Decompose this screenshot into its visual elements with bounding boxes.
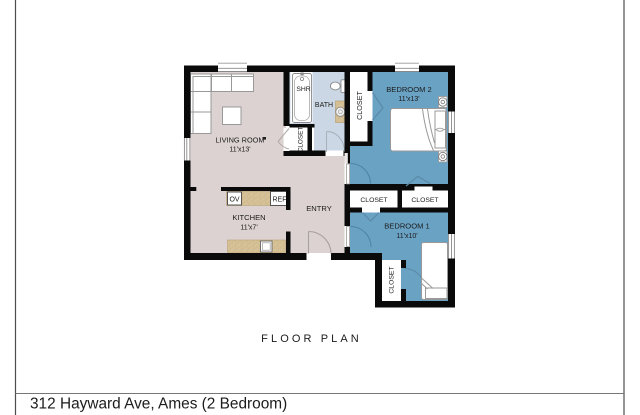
svg-text:CLOSET: CLOSET xyxy=(389,266,396,293)
svg-text:BATH: BATH xyxy=(315,102,333,109)
svg-text:REF: REF xyxy=(273,197,287,204)
svg-text:11'x7': 11'x7' xyxy=(240,225,257,232)
svg-text:OV: OV xyxy=(229,197,239,204)
svg-text:CLOSET: CLOSET xyxy=(411,197,438,204)
svg-text:FLOOR PLAN: FLOOR PLAN xyxy=(261,333,362,345)
svg-text:CLOSET: CLOSET xyxy=(360,197,387,204)
svg-text:SHR: SHR xyxy=(296,86,310,93)
svg-text:312 Hayward Ave, Ames (2 Bedro: 312 Hayward Ave, Ames (2 Bedroom) xyxy=(30,396,287,413)
svg-text:BEDROOM 2: BEDROOM 2 xyxy=(386,85,432,94)
svg-text:CLOSET: CLOSET xyxy=(355,91,364,120)
svg-text:BEDROOM 1: BEDROOM 1 xyxy=(384,222,430,231)
svg-text:11'x13': 11'x13' xyxy=(398,96,419,103)
svg-text:ENTRY: ENTRY xyxy=(306,204,332,213)
svg-text:CLOSET: CLOSET xyxy=(298,127,305,153)
svg-text:11'x10': 11'x10' xyxy=(396,233,417,240)
svg-text:11'x13': 11'x13' xyxy=(229,147,250,154)
svg-text:LIVING ROOM: LIVING ROOM xyxy=(216,136,265,145)
svg-text:KITCHEN: KITCHEN xyxy=(232,213,265,222)
